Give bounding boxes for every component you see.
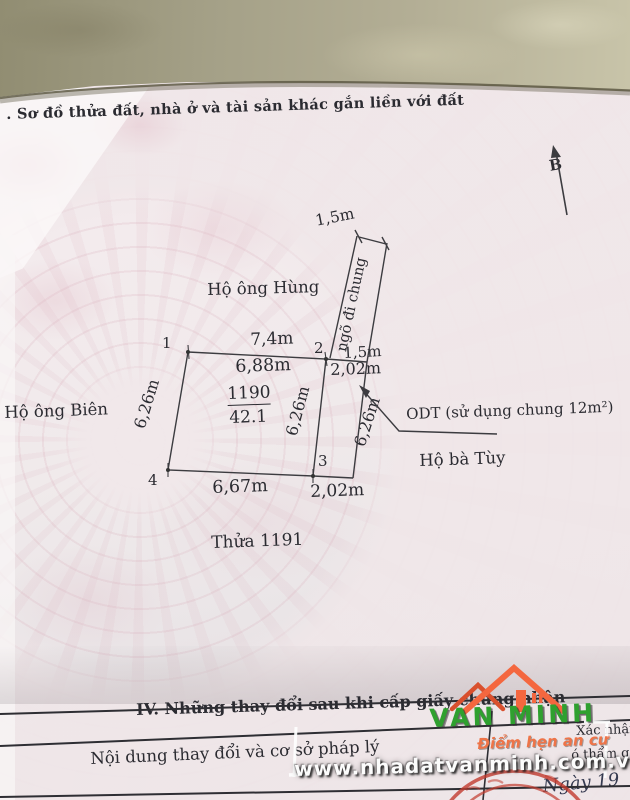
- corner-label-3: 3: [318, 454, 328, 470]
- page-edge: [0, 235, 15, 800]
- parcel-area: 42.1: [229, 409, 267, 428]
- corner-label-1: 1: [162, 336, 172, 352]
- dim-top-outer: 7,4m: [250, 330, 294, 349]
- dim-strip-bottom: 2,02m: [310, 482, 365, 502]
- parcel-number-text: 1190: [227, 382, 271, 405]
- north-label: B: [548, 157, 563, 175]
- corner-label-2: 2: [314, 341, 324, 357]
- neighbor-left-label: Hộ ông Biên: [4, 400, 108, 421]
- corner-label-4: 4: [148, 473, 158, 489]
- dim-strip-top: 2,02m: [330, 360, 381, 379]
- land-certificate-photo: . Sơ đồ thửa đất, nhà ở và tài sản khác …: [0, 0, 630, 800]
- dim-bottom: 6,67m: [212, 477, 268, 497]
- neighbor-top-label: Hộ ông Hùng: [207, 278, 320, 298]
- watermark-brand: VAN MINH: [429, 700, 596, 732]
- dim-top-inner: 6,88m: [235, 356, 291, 376]
- parcel-number: 1190: [227, 384, 271, 403]
- neighbor-right-label: Hộ bà Tùy: [419, 449, 506, 469]
- adjacent-parcel-label: Thửa 1191: [211, 532, 304, 553]
